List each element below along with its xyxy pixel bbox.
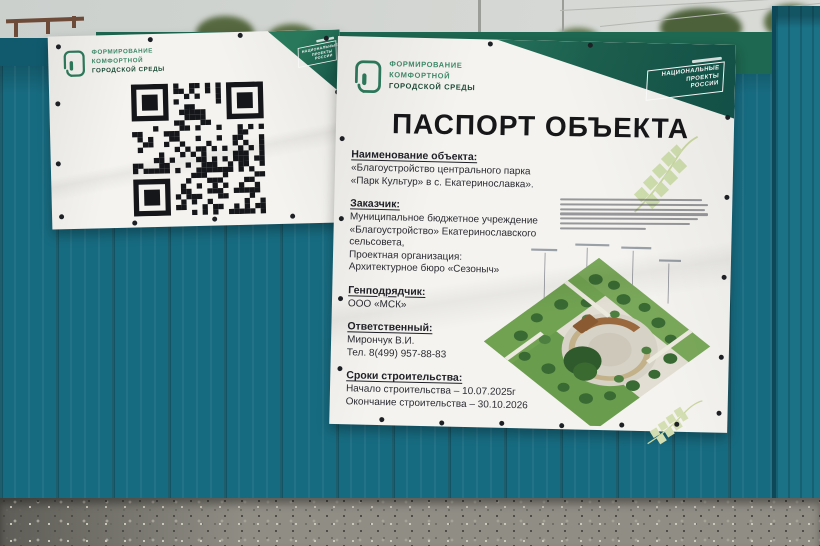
passport-banner: НАЦИОНАЛЬНЫЕ ПРОЕКТЫ РОССИИ ФОРМИРОВАНИЕ… [329, 36, 736, 433]
banner-grommets [48, 36, 53, 41]
fkgs-logo-text: ФОРМИРОВАНИЕ КОМФОРТНОЙ ГОРОДСКОЙ СРЕДЫ [91, 47, 164, 76]
qr-code-svg [129, 81, 268, 216]
fence-gate-panel [772, 6, 820, 505]
scaffold-post [72, 16, 76, 28]
fkgs-logo: ФОРМИРОВАНИЕ КОМФОРТНОЙ ГОРОДСКОЙ СРЕДЫ [62, 47, 165, 79]
fkgs-line: ГОРОДСКОЙ СРЕДЫ [92, 65, 165, 76]
banner-grommets [338, 36, 343, 41]
fine-print-illegible [560, 198, 708, 232]
scaffold-post [46, 20, 50, 34]
photo-scene: НАЦИОНАЛЬНЫЕ ПРОЕКТЫ РОССИИ ФОРМИРОВАНИЕ… [0, 0, 820, 546]
fkgs-logo-icon [353, 58, 384, 95]
fkgs-logo-icon [62, 49, 87, 79]
gravel-ground [0, 498, 820, 546]
scaffold-post [14, 21, 18, 37]
section-object-name: Наименование объекта: «Благоустройство ц… [351, 148, 566, 192]
fkgs-line: ГОРОДСКОЙ СРЕДЫ [389, 81, 476, 94]
qr-code [129, 81, 268, 216]
fkgs-logo: ФОРМИРОВАНИЕ КОМФОРТНОЙ ГОРОДСКОЙ СРЕДЫ [353, 58, 476, 97]
fkgs-logo-text: ФОРМИРОВАНИЕ КОМФОРТНОЙ ГОРОДСКОЙ СРЕДЫ [389, 59, 476, 94]
qr-banner: НАЦИОНАЛЬНЫЕ ПРОЕКТЫ РОССИИ ФОРМИРОВАНИЕ… [48, 29, 345, 229]
